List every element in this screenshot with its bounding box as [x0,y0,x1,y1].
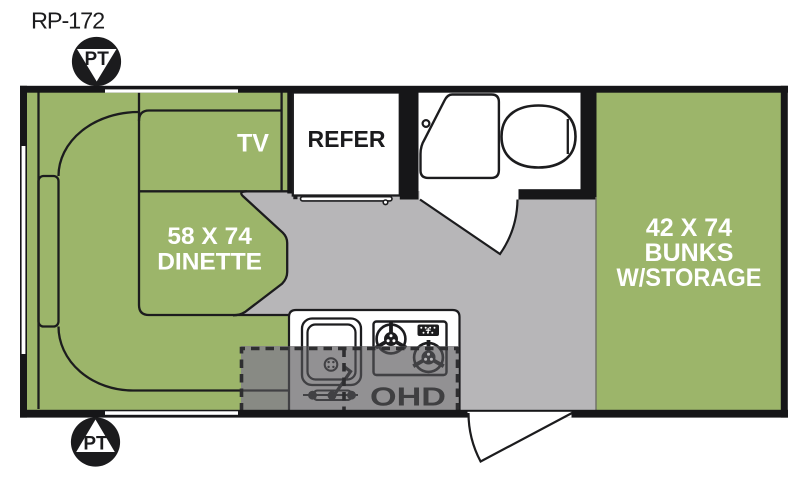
svg-text:PT: PT [83,434,108,455]
svg-text:42 X 74: 42 X 74 [646,214,732,242]
svg-text:58 X 74: 58 X 74 [167,223,252,250]
svg-text:DINETTE: DINETTE [157,248,262,275]
svg-text:PT: PT [85,49,110,70]
svg-text:BUNKS: BUNKS [645,239,734,267]
svg-text:TV: TV [237,130,269,158]
svg-text:REFER: REFER [308,126,386,152]
svg-text:RP-172: RP-172 [31,8,104,34]
svg-text:OHD: OHD [370,384,446,412]
svg-text:W/STORAGE: W/STORAGE [617,264,762,292]
